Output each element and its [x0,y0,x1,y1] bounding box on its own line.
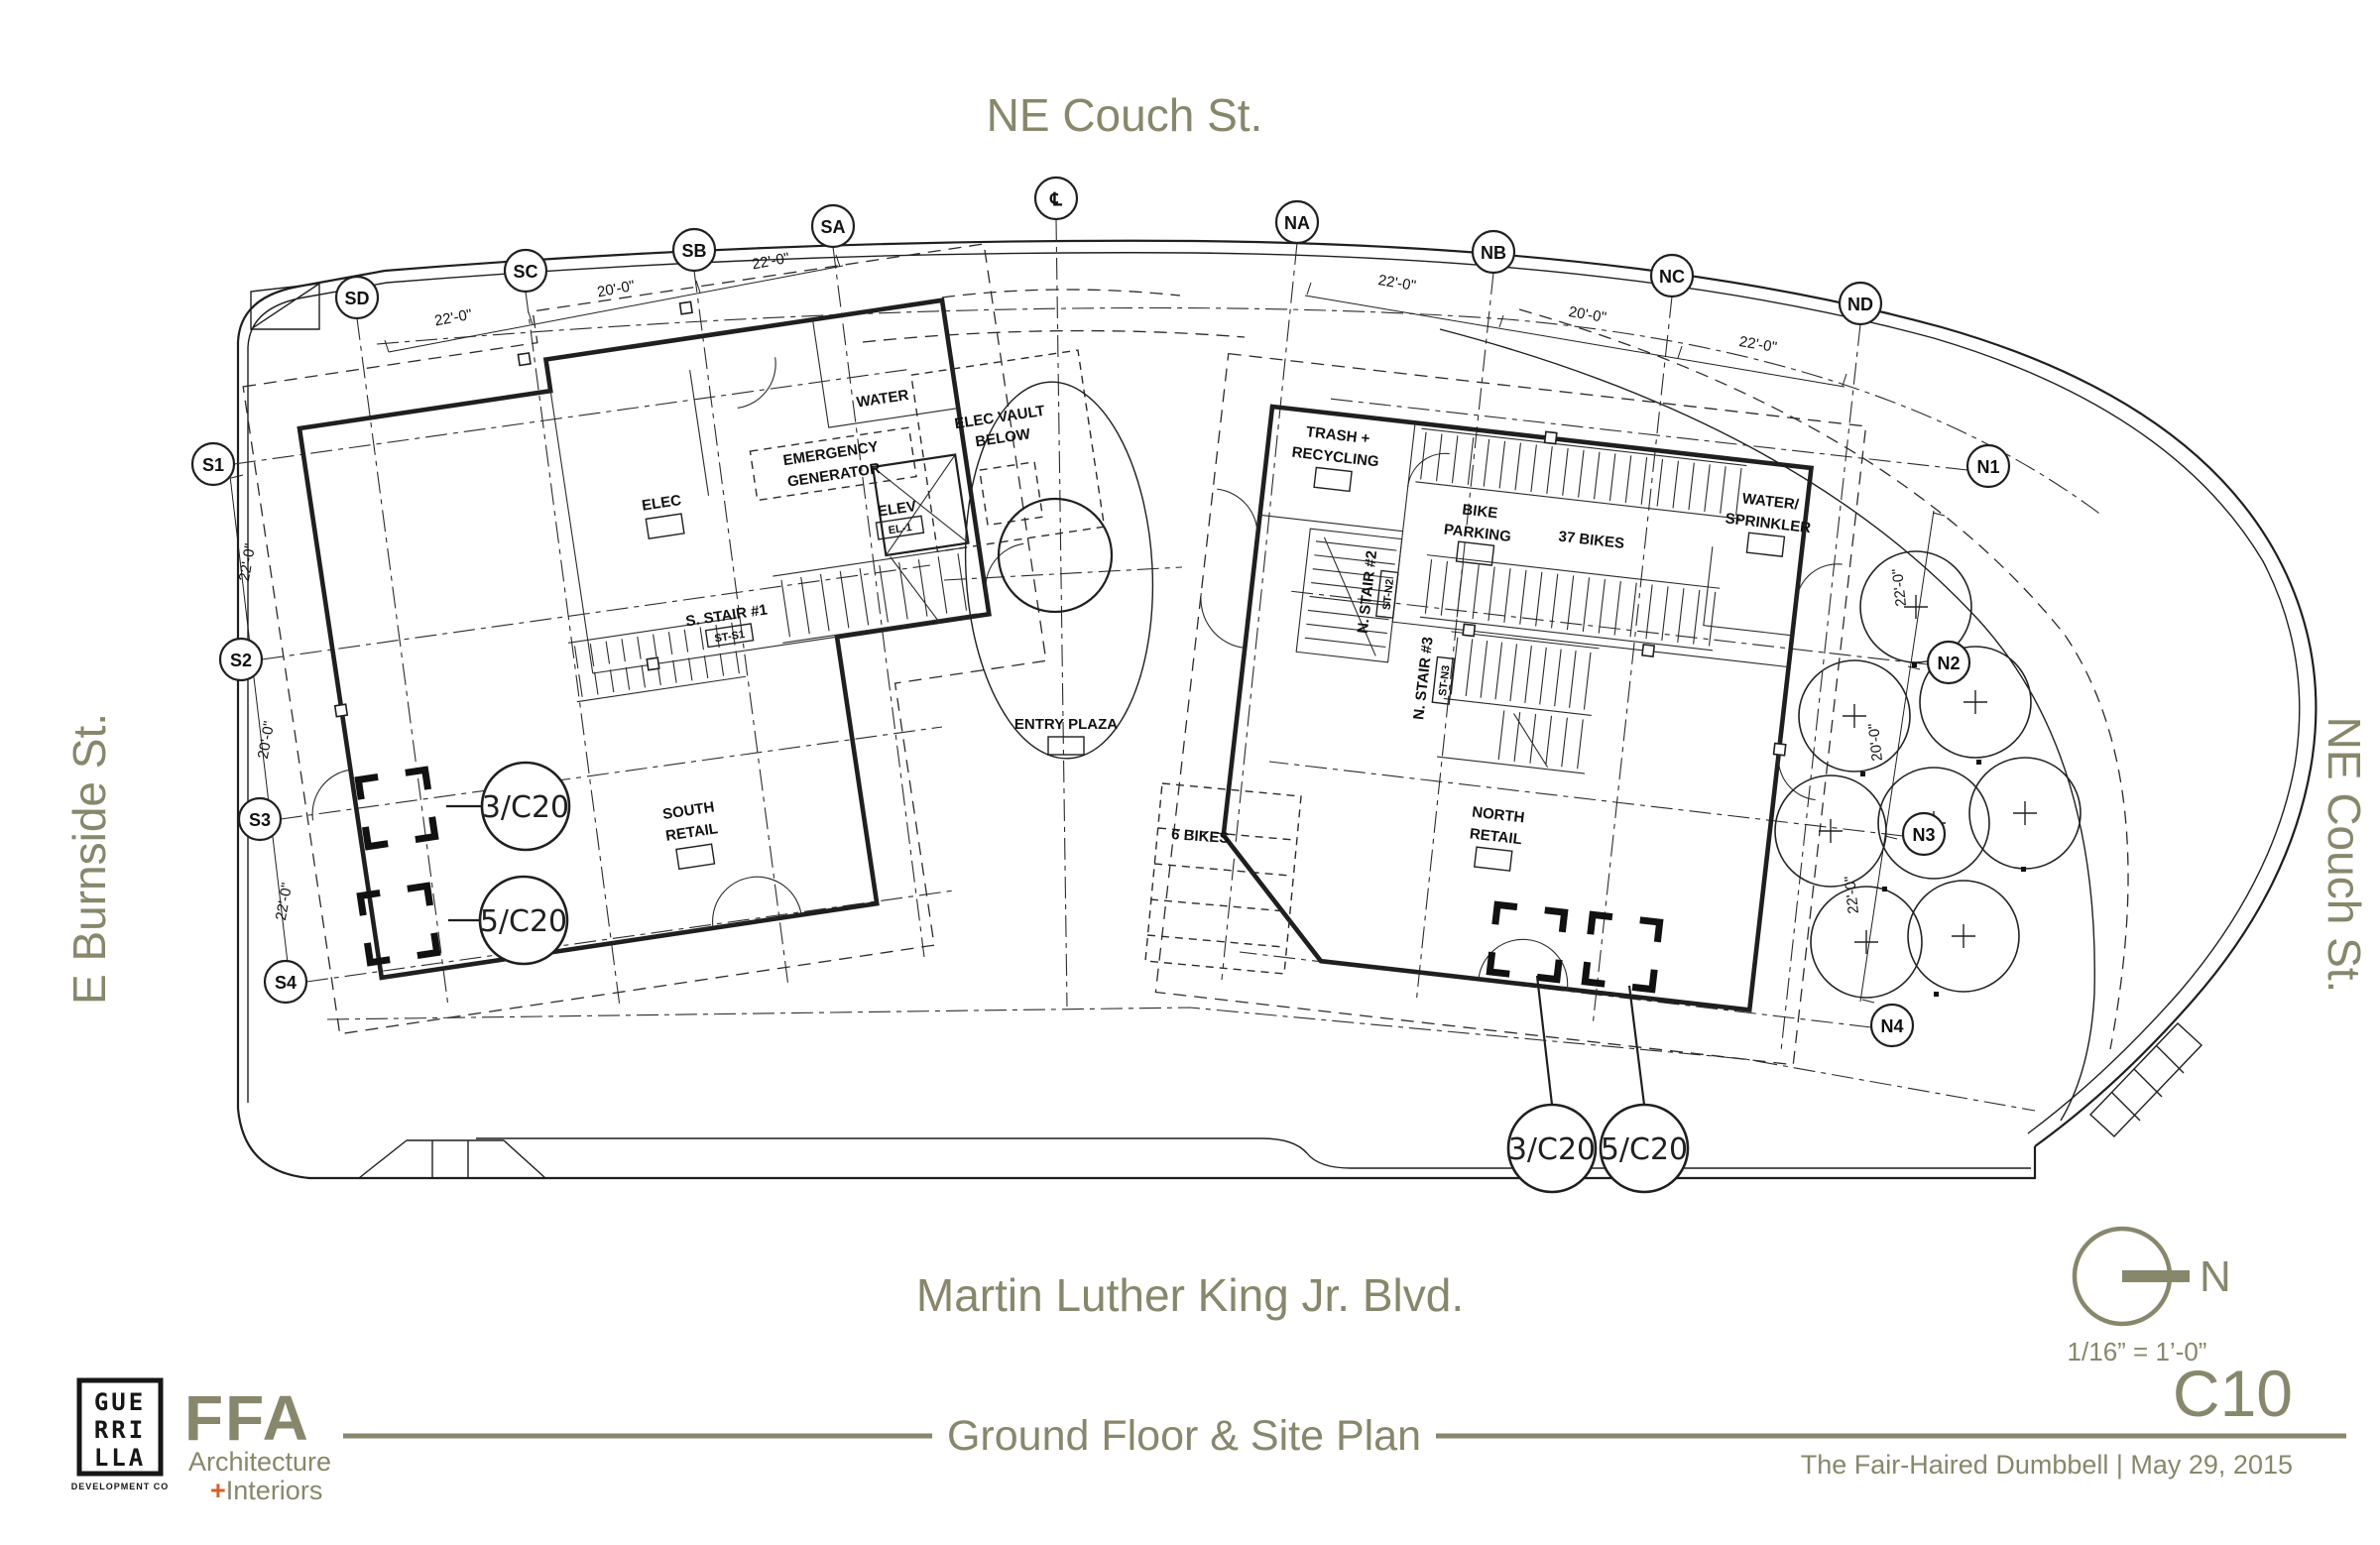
svg-text:N. STAIR #2: N. STAIR #2 [1355,549,1380,634]
north-building-outline [1211,407,1812,1010]
bike-racks-b [1420,555,1720,651]
svg-text:GUE: GUE [94,1388,146,1416]
grid-bubble: S4 [275,973,297,993]
grid-bubble: NC [1659,267,1685,287]
dim-text: 22'-0" [273,882,296,922]
grid-bubble: NB [1481,243,1506,263]
callout-5c20-bottom: 5/C20 [1601,1105,1688,1192]
street-label-left: E Burnside St. [63,713,115,1005]
street-centerline-top [377,307,2102,516]
dim-text: 22'-0" [433,306,474,330]
svg-text:NORTH: NORTH [1471,803,1525,826]
guerrilla-logo: GUE RRI LLA DEVELOPMENT CO [71,1380,170,1491]
ffa-plus: + [210,1476,226,1505]
trees [1775,551,2081,998]
svg-text:5/C20: 5/C20 [480,904,567,939]
water-label: WATER [856,387,910,412]
grid-bubble: N4 [1880,1016,1903,1036]
ffa-sub2: +Interiors [210,1476,322,1505]
trash-recycling-label: TRASH + RECYCLING [1288,422,1382,495]
dim-text: 22'-0" [1889,568,1910,608]
svg-text:PARKING: PARKING [1443,521,1512,545]
dim-text: 22'-0" [1737,333,1778,356]
curb-cut-left [359,1140,545,1178]
street-label-right: NE Couch St. [2319,717,2370,994]
grid-bubble: S3 [249,810,271,830]
dim-text: 22'-0" [751,250,791,274]
project-info: The Fair-Haired Dumbbell | May 29, 2015 [1801,1450,2293,1480]
north-retail-label: NORTH RETAIL [1466,803,1525,872]
street-labels: NE Couch St. Martin Luther King Jr. Blvd… [63,89,2370,1321]
elev-label: ELEV EL-1 [874,498,924,539]
north-arrow: N 1/16” = 1’-0” [2068,1229,2231,1367]
north-arrow-bar [2122,1270,2190,1282]
south-doors [255,325,1073,985]
grid-bubble: SB [681,241,706,261]
dimensions: 22'-0" 20'-0" 22'-0" 22'-0" 20'-0" 22'-0… [230,250,1945,1003]
elec-label: ELEC [641,492,686,538]
grid-bubble: N2 [1937,654,1960,673]
guerrilla-sub: DEVELOPMENT CO [71,1482,170,1491]
street-label-top: NE Couch St. [987,89,1263,141]
entry-plaza-label: ENTRY PLAZA [1014,716,1118,733]
north-arrow-letter: N [2200,1252,2231,1301]
elec-vault-label: ELEC VAULT [953,403,1045,432]
elec-vault-label: BELOW [974,425,1032,450]
north-building: TRASH + RECYCLING BIKE PARKING 37 BIKES … [1155,354,1865,1065]
grid-bubble: SD [344,289,369,308]
south-retail-label: SOUTH RETAIL [661,798,723,870]
plaza-canopy-dash [863,290,1245,342]
svg-text:3/C20: 3/C20 [1508,1132,1596,1167]
svg-text:5/C20: 5/C20 [1601,1132,1688,1167]
ffa-logo: FFA Architecture +Interiors [184,1382,331,1505]
svg-text:SPRINKLER: SPRINKLER [1725,510,1812,536]
south-stair-label: S. STAIR #1 ST-S1 [684,601,772,650]
bike-count-label: 37 BIKES [1558,529,1625,552]
dim-text: 20'-0" [255,720,278,761]
south-canopy-dashed [238,244,1085,1034]
bike-parking-label: BIKE PARKING 37 BIKES [1441,500,1627,580]
grid-bubble: ND [1847,295,1873,314]
svg-text:TRASH +: TRASH + [1305,423,1370,447]
north-stair-3 [1437,632,1599,773]
elec-vault-below: ELEC VAULT BELOW [911,350,1105,551]
property-line-bottom [327,1008,2035,1111]
hatch-bottom-right [2090,1023,2201,1136]
dim-text: 22'-0" [236,542,259,583]
north-stair3-label: N. STAIR #3 ST-N3 [1410,636,1456,723]
grid-bubble: SA [820,217,845,237]
svg-text:N. STAIR #3: N. STAIR #3 [1410,636,1436,720]
title-block: GUE RRI LLA DEVELOPMENT CO FFA Architect… [71,1357,2346,1505]
grid-bubble-centerline: ℄ [1049,189,1062,209]
sheet-number: C10 [2173,1357,2293,1430]
callout-3c20-bottom: 3/C20 [1508,1105,1596,1192]
drawing-title: Ground Floor & Site Plan [947,1412,1421,1460]
dim-text: 20'-0" [1567,303,1607,326]
dim-text: 22'-0" [1842,876,1862,915]
callout-3c20-left: 3/C20 [482,763,569,850]
six-bikes-label: 6 BIKES [1171,826,1230,847]
svg-text:LLA: LLA [94,1444,146,1472]
svg-text:RETAIL: RETAIL [1469,825,1523,848]
grid-bubble: SC [513,262,537,282]
six-bikes: 6 BIKES [1145,783,1301,974]
grid-bubble: S1 [202,455,224,475]
site-plan-drawing: 22'-0" 20'-0" 22'-0" 22'-0" 20'-0" 22'-0… [0,0,2380,1545]
street-label-bottom: Martin Luther King Jr. Blvd. [916,1269,1464,1321]
svg-text:SOUTH: SOUTH [661,798,715,823]
sidewalk-inner-line [476,1138,2031,1168]
callout-5c20-left: 5/C20 [480,877,567,964]
south-building: ELEC VAULT BELOW WATER EMERGENCY GENERAT… [238,232,1161,1033]
grid-bubble: NA [1284,213,1310,233]
ffa-sub1: Architecture [188,1447,331,1477]
north-stair2-label: N. STAIR #2 ST-N2 [1355,549,1400,637]
svg-text:RRI: RRI [94,1416,146,1444]
dim-text: 22'-0" [1376,272,1417,295]
svg-text:ELEC: ELEC [641,492,682,515]
svg-text:S. STAIR #1: S. STAIR #1 [684,601,769,630]
property-curve-right [1519,309,2128,1049]
svg-text:WATER/: WATER/ [1741,490,1801,513]
svg-text:FFA: FFA [184,1382,310,1454]
svg-text:3/C20: 3/C20 [482,790,569,825]
grid-bubble: S2 [230,651,252,670]
north-partitions [1249,407,1811,667]
grid-bubble: N3 [1912,825,1935,845]
svg-text:RETAIL: RETAIL [664,820,719,845]
grid-bubble: N1 [1976,457,1999,477]
dim-text: 20'-0" [1865,723,1886,763]
svg-text:RECYCLING: RECYCLING [1291,444,1380,471]
